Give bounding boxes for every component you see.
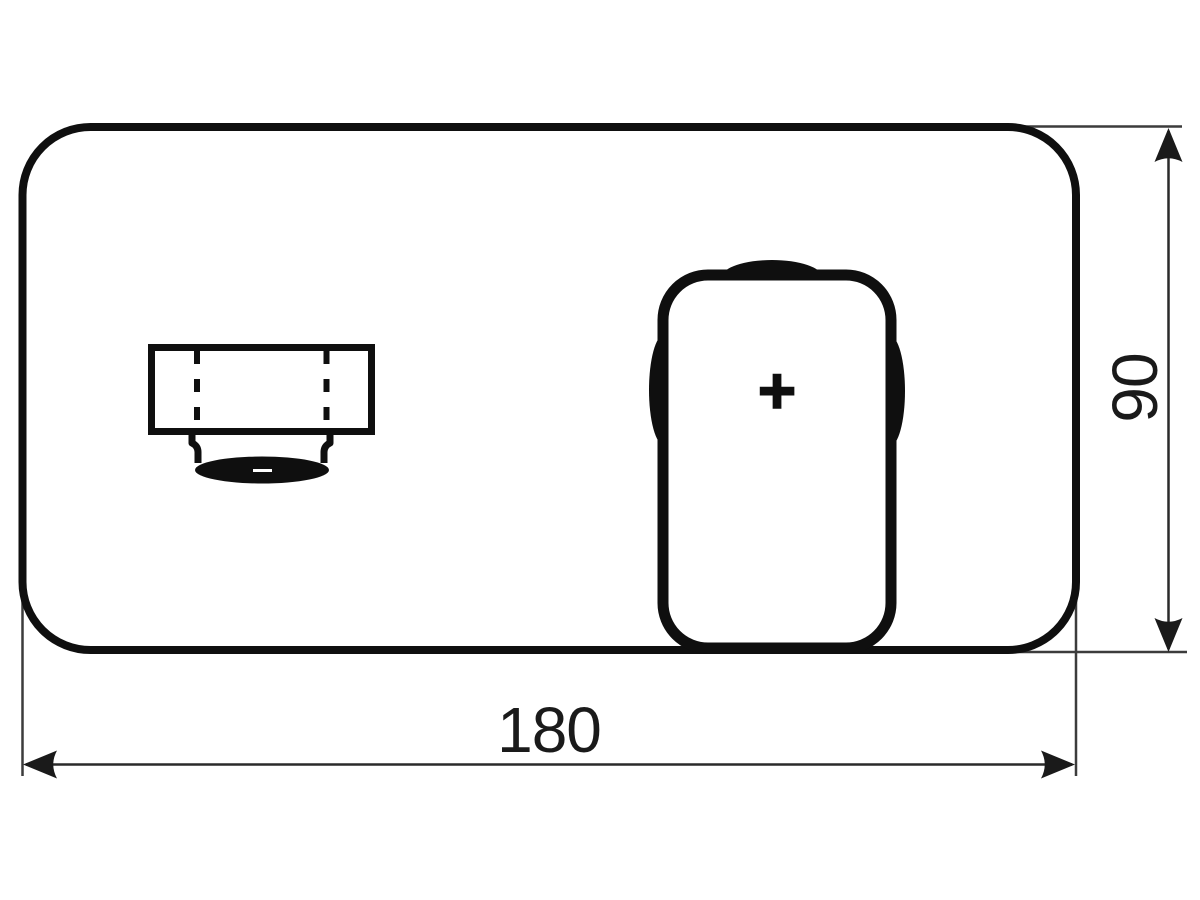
spout-body-outline [152, 348, 372, 432]
drawing-canvas: + 180 90 [0, 0, 1200, 900]
handle: + [649, 260, 905, 648]
width-dimension-label: 180 [497, 694, 601, 766]
height-arrow-bottom [1155, 618, 1183, 652]
height-dimension: 90 [1099, 128, 1183, 652]
handle-cross-marker: + [758, 353, 797, 427]
technical-drawing: + 180 90 [0, 0, 1200, 900]
width-arrow-left [23, 751, 57, 779]
height-dimension-label: 90 [1099, 353, 1171, 422]
width-dimension: 180 [23, 694, 1075, 779]
height-arrow-top [1155, 128, 1183, 162]
width-arrow-right [1041, 751, 1075, 779]
handle-outline [663, 275, 891, 648]
